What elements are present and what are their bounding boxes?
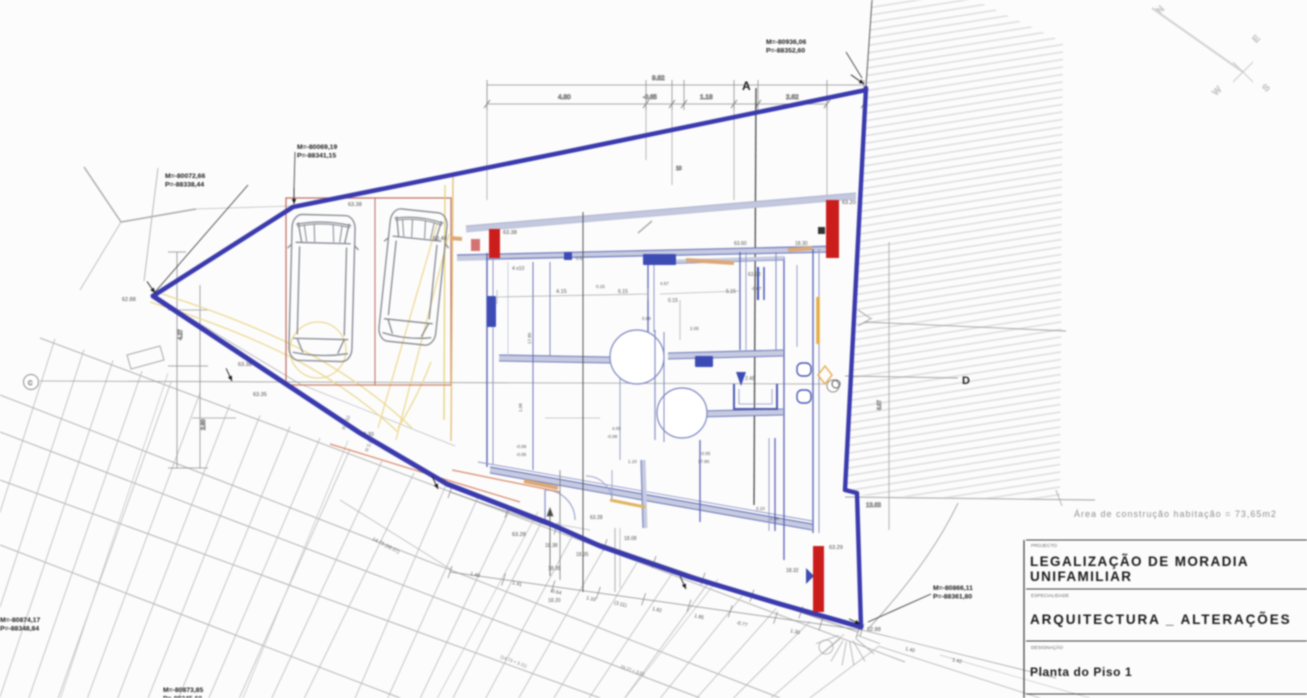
svg-text:C: C (28, 381, 33, 387)
svg-text:A: A (742, 79, 751, 93)
svg-text:D: D (962, 375, 970, 387)
svg-text:P=-88352,60: P=-88352,60 (766, 48, 805, 55)
svg-text:P=-88348,84: P=-88348,84 (0, 626, 39, 633)
svg-text:-0.65: -0.65 (643, 95, 657, 101)
svg-text:63.40: 63.40 (433, 236, 447, 242)
svg-text:2.80: 2.80 (201, 419, 207, 430)
svg-text:4 x10: 4 x10 (512, 266, 524, 272)
svg-text:4.80: 4.80 (558, 94, 571, 101)
svg-text:18.32: 18.32 (786, 568, 799, 574)
svg-text:P=-88338,44: P=-88338,44 (165, 182, 204, 189)
svg-text:18.20: 18.20 (548, 598, 561, 604)
svg-text:1.68: 1.68 (770, 516, 779, 521)
svg-text:18.30: 18.30 (795, 241, 808, 247)
svg-text:-0.05: -0.05 (700, 451, 711, 456)
svg-text:M=-80874,17: M=-80874,17 (0, 617, 40, 624)
svg-text:1.18: 1.18 (700, 94, 713, 101)
svg-text:63.38: 63.38 (503, 230, 517, 236)
svg-text:-0.08: -0.08 (516, 444, 527, 449)
svg-text:4.15: 4.15 (556, 289, 567, 295)
svg-text:1.10: 1.10 (628, 459, 637, 464)
svg-text:2.05: 2.05 (690, 326, 699, 331)
svg-text:ARQUITECTURA _ ALTERAÇÕES: ARQUITECTURA _ ALTERAÇÕES (1030, 612, 1292, 627)
svg-text:63.29: 63.29 (829, 545, 843, 551)
svg-text:2.62: 2.62 (786, 94, 799, 101)
svg-text:0.5: 0.5 (576, 256, 583, 261)
svg-text:63.60: 63.60 (734, 241, 747, 247)
svg-text:9.82: 9.82 (652, 75, 665, 82)
svg-text:0.10: 0.10 (756, 506, 765, 511)
svg-text:-0.05: -0.05 (516, 452, 527, 457)
svg-text:63.28: 63.28 (512, 532, 526, 538)
svg-text:63.38: 63.38 (348, 202, 362, 208)
svg-text:17.80: 17.80 (527, 332, 532, 344)
svg-text:10: 10 (676, 166, 682, 172)
svg-text:P=-88341,15: P=-88341,15 (297, 153, 336, 160)
svg-text:4.27: 4.27 (178, 329, 184, 340)
svg-text:0.15: 0.15 (596, 284, 605, 289)
svg-text:5.15: 5.15 (726, 289, 736, 295)
svg-text:18.35: 18.35 (576, 552, 589, 558)
svg-text:0.88: 0.88 (642, 316, 651, 321)
svg-text:-0.08: -0.08 (607, 434, 618, 439)
svg-text:M=-80866,11: M=-80866,11 (933, 585, 973, 592)
svg-text:2.48: 2.48 (745, 376, 755, 382)
svg-text:6.67: 6.67 (877, 400, 883, 410)
svg-text:PROJECTO: PROJECTO (1031, 543, 1057, 549)
svg-text:1.08: 1.08 (518, 403, 523, 412)
svg-text:M=-80936,06: M=-80936,06 (766, 39, 806, 46)
svg-text:63.35: 63.35 (253, 392, 267, 398)
svg-text:-0.67: -0.67 (751, 286, 762, 291)
svg-text:4.05: 4.05 (612, 426, 621, 431)
svg-text:17.80: 17.80 (698, 459, 710, 464)
svg-text:6.15: 6.15 (618, 289, 628, 295)
svg-text:M=-80873,85: M=-80873,85 (163, 687, 203, 694)
svg-text:63.98: 63.98 (748, 272, 761, 278)
svg-text:18.08: 18.08 (624, 536, 637, 542)
svg-text:Planta do Piso 1: Planta do Piso 1 (1030, 665, 1132, 679)
svg-text:Área de construção habitação =: Área de construção habitação = 73,65m2 (1074, 509, 1277, 519)
svg-text:63.20: 63.20 (842, 200, 856, 206)
svg-text:UNIFAMILIAR: UNIFAMILIAR (1030, 569, 1132, 584)
svg-text:P=-88361,80: P=-88361,80 (933, 594, 972, 601)
svg-text:18.38: 18.38 (545, 543, 558, 549)
svg-text:62.88: 62.88 (122, 297, 136, 303)
svg-text:63.28: 63.28 (590, 515, 603, 521)
svg-text:M=-80069,19: M=-80069,19 (297, 144, 337, 151)
svg-text:ESPECIALIDADE: ESPECIALIDADE (1031, 593, 1069, 599)
svg-text:4.67: 4.67 (660, 281, 669, 286)
svg-text:LEGALIZAÇÃO DE MORADIA: LEGALIZAÇÃO DE MORADIA (1030, 554, 1249, 569)
svg-text:M=-80072,66: M=-80072,66 (165, 173, 205, 180)
svg-text:13.63: 13.63 (866, 503, 882, 509)
svg-text:DESIGNAÇÃO: DESIGNAÇÃO (1031, 644, 1063, 651)
svg-text:0.15: 0.15 (668, 298, 678, 304)
